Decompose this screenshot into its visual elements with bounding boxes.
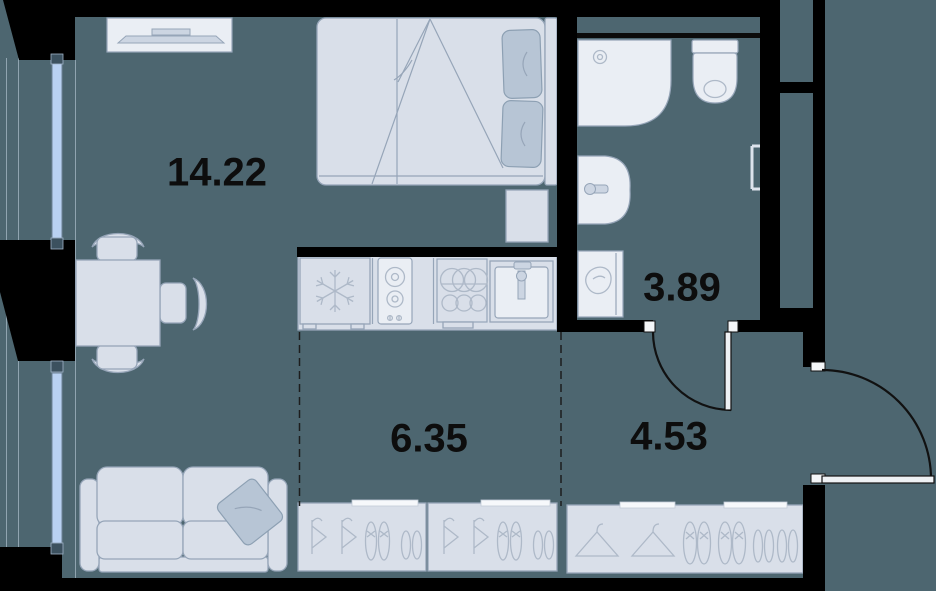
- fridge-icon: [300, 258, 370, 329]
- wardrobe-track: [620, 502, 675, 508]
- wardrobe: [428, 503, 557, 571]
- toilet-icon: [692, 40, 738, 103]
- shower-tray-icon: [578, 40, 671, 126]
- hob-burners-icon: [378, 258, 412, 324]
- double-bed-icon: [317, 18, 557, 185]
- chair-icon: [160, 278, 207, 330]
- bathroom-inner-wall-line: [577, 33, 760, 38]
- wardrobe-track: [352, 500, 418, 506]
- dining-table-icon: [76, 234, 207, 373]
- window-icon: [52, 62, 62, 238]
- area-label-kitchen-hall: 6.35: [390, 417, 468, 462]
- towel-rail-icon: [752, 146, 760, 189]
- window-icon: [52, 373, 62, 543]
- wardrobe-track: [724, 502, 787, 508]
- door-swing-icon: [644, 321, 738, 410]
- wardrobe: [567, 505, 803, 573]
- sofa-icon: [80, 467, 287, 572]
- area-label-entrance-hall: 4.53: [630, 415, 708, 460]
- nightstand-icon: [506, 190, 548, 242]
- entrance-door-swing-icon: [811, 362, 934, 483]
- area-label-living: 14.22: [167, 151, 267, 196]
- chair-icon: [92, 345, 144, 373]
- kitchen-sink-icon: [490, 261, 553, 322]
- area-label-bathroom: 3.89: [643, 266, 721, 311]
- kitchen-counter: [298, 256, 557, 330]
- wardrobes: [298, 500, 803, 573]
- wardrobe-track: [481, 500, 550, 506]
- washbasin-icon: [578, 156, 630, 224]
- wardrobe: [298, 503, 426, 571]
- tv-console-icon: [107, 18, 232, 52]
- chair-icon: [92, 234, 144, 262]
- washing-machine-icon: [578, 251, 623, 317]
- floor-plan: 14.22 3.89 6.35 4.53: [0, 0, 936, 591]
